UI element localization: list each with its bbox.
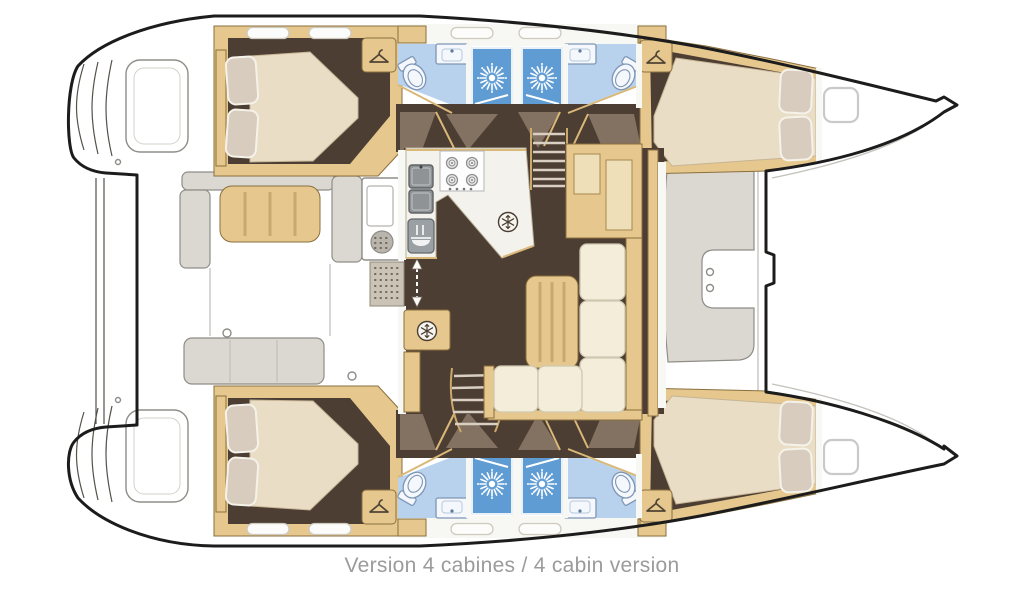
stove: [440, 151, 484, 191]
bathroom-sink: [436, 44, 468, 64]
cabin-window: [247, 28, 289, 39]
pillow: [779, 69, 813, 114]
fork-dish-icon: [408, 219, 434, 253]
burner-icon: [467, 158, 478, 169]
bathroom-window: [451, 28, 493, 39]
cockpit-side-bench: [332, 176, 362, 262]
cabin-window: [309, 28, 351, 39]
nav-station: [566, 144, 642, 238]
swim-platform-edge: [96, 178, 104, 424]
salon: [370, 128, 666, 432]
bathroom-sink: [564, 44, 596, 64]
burner-icon: [467, 175, 478, 186]
pillow: [779, 116, 813, 161]
sofa-cushion: [494, 366, 538, 412]
bow-deck-hatch: [824, 88, 858, 122]
snowflake-icon: [418, 322, 437, 341]
sofa-cushion: [580, 301, 625, 357]
pillow: [225, 109, 258, 158]
cockpit-side-bench: [180, 190, 210, 268]
sofa-cushion: [538, 366, 582, 412]
catamaran-floor-plan: Version 4 cabines / 4 cabin version: [0, 0, 1024, 600]
pillow: [225, 56, 258, 105]
snowflake-icon: [499, 213, 518, 232]
aft-cabin: [214, 26, 402, 176]
cockpit-aft-sunpad: [184, 338, 324, 384]
burner-icon: [447, 158, 458, 169]
plan-caption: Version 4 cabines / 4 cabin version: [344, 554, 679, 577]
bathroom-window: [519, 28, 561, 39]
burner-icon: [447, 175, 458, 186]
cockpit-round-sink: [371, 231, 393, 253]
cabinet: [404, 352, 420, 412]
sun-icon: [527, 63, 557, 93]
sofa-cushion: [580, 358, 625, 412]
sliding-door-wall: [398, 150, 406, 260]
sun-icon: [477, 63, 507, 93]
sofa-cushion: [580, 244, 625, 300]
salon-forward-wall: [648, 150, 658, 416]
